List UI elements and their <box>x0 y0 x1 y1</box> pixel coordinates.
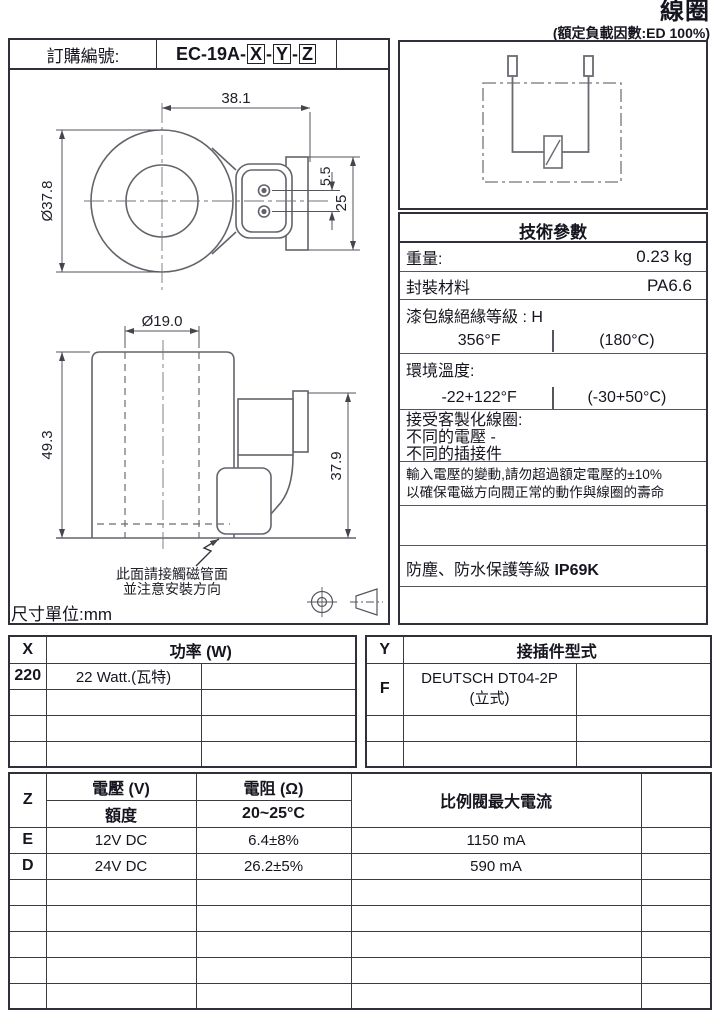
voltage-subheader: 額度 <box>46 800 196 827</box>
empty-cell <box>9 983 46 1009</box>
dim-37-8: Ø37.8 <box>39 181 56 222</box>
order-code-y: Y <box>273 44 291 65</box>
order-number-empty-cell <box>337 40 388 68</box>
empty-cell <box>403 715 576 741</box>
table-row: D 24V DC 26.2±5% 590 mA <box>9 853 711 879</box>
third-angle-projection-icon <box>350 589 383 615</box>
top-view-dimensions <box>56 108 360 272</box>
empty-cell <box>196 879 351 905</box>
empty-cell <box>351 905 641 931</box>
warning-line-1: 輸入電壓的變動,請勿超過額定電壓的±10% <box>406 466 700 484</box>
dim-37-9: 37.9 <box>328 451 345 480</box>
ambient-temp-row: 環境溫度: -22+122°F (-30+50°C) <box>400 354 706 410</box>
insulation-fahrenheit: 356°F <box>406 332 552 350</box>
warning-line-2: 以確保電磁方向閥正常的動作與線圈的壽命 <box>406 484 700 502</box>
customization-row: 接受客製化線圈: 不同的電壓 - 不同的插接件 <box>400 410 706 462</box>
empty-cell <box>9 715 46 741</box>
order-number-label: 訂購編號: <box>10 40 157 68</box>
connector-code-f: F <box>366 663 403 715</box>
tech-params-title: 技術參數 <box>400 214 706 243</box>
connector-pin-1-dot <box>262 189 266 193</box>
empty-cell <box>46 905 196 931</box>
power-table-header: 功率 (W) <box>46 636 356 663</box>
terminals <box>508 56 593 76</box>
empty-cell <box>641 905 711 931</box>
empty-cell <box>641 853 711 879</box>
title-block: 線圈 (額定負載因數:ED 100%) <box>553 0 710 40</box>
empty-cell <box>201 663 356 689</box>
material-row: 封裝材料 PA6.6 <box>400 272 706 300</box>
coil-technical-drawing: 38.1 Ø37.8 5.5 25 <box>8 68 390 625</box>
ambient-fahrenheit: -22+122°F <box>406 389 552 407</box>
side-view-dimensions <box>56 326 356 538</box>
empty-cell <box>9 741 46 767</box>
dim-25: 25 <box>333 195 350 212</box>
max-current-header: 比例閥最大電流 <box>351 773 641 827</box>
terminal-pin-2 <box>584 56 593 76</box>
resistance-value: 26.2±5% <box>196 853 351 879</box>
side-connector-flange <box>293 391 308 452</box>
customization-line-2: 不同的電壓 - <box>406 429 700 446</box>
customization-line-3: 不同的插接件 <box>406 446 700 463</box>
side-connector-upper <box>238 399 293 455</box>
side-view <box>56 352 356 538</box>
empty-cell <box>9 957 46 983</box>
customization-line-1: 接受客製化線圈: <box>406 412 700 429</box>
empty-cell <box>366 715 403 741</box>
material-label: 封裝材料 <box>406 274 470 298</box>
empty-cell <box>641 879 711 905</box>
power-table-code-header: X <box>9 636 46 663</box>
weight-value: 0.23 kg <box>636 247 700 267</box>
voltage-header: 電壓 (V) <box>46 773 196 800</box>
current-value: 1150 mA <box>351 827 641 853</box>
projection-symbols <box>307 587 383 617</box>
resistance-value: 6.4±8% <box>196 827 351 853</box>
empty-cell <box>196 905 351 931</box>
top-view-centerlines <box>84 103 330 290</box>
terminal-pin-1 <box>508 56 517 76</box>
datasheet-page: 線圈 (額定負載因數:ED 100%) 訂購編號: EC-19A-X-Y-Z <box>0 0 715 1013</box>
ambient-celsius: (-30+50°C) <box>554 389 700 407</box>
top-view-dim-labels: 38.1 Ø37.8 5.5 25 <box>39 90 350 221</box>
voltage-code-e: E <box>9 827 46 853</box>
empty-cell <box>403 741 576 767</box>
empty-cell <box>196 983 351 1009</box>
connector-option-table: Y 接插件型式 F DEUTSCH DT04-2P (立式) <box>365 635 712 768</box>
side-connector-curve <box>271 455 293 514</box>
connector-value: DEUTSCH DT04-2P (立式) <box>403 663 576 715</box>
mounting-note: 此面請接觸磁管面 並注意安裝方向 <box>116 566 228 597</box>
empty-cell <box>46 689 201 715</box>
order-number-code: EC-19A-X-Y-Z <box>157 40 337 68</box>
empty-cell <box>576 715 711 741</box>
empty-cell <box>201 715 356 741</box>
side-view-hidden-lines <box>97 352 230 538</box>
dim-19-0: Ø19.0 <box>142 313 183 330</box>
dim-38-1: 38.1 <box>221 90 250 107</box>
circuit-panel <box>398 40 708 210</box>
order-code-prefix: EC-19A- <box>176 44 246 65</box>
voltage-table-code-header: Z <box>9 773 46 827</box>
empty-cell <box>46 957 196 983</box>
side-connector-lower <box>217 468 271 534</box>
current-value: 590 mA <box>351 853 641 879</box>
insulation-row: 漆包線絕緣等級 : H 356°F (180°C) <box>400 300 706 354</box>
empty-cell <box>9 689 46 715</box>
connector-value-line-1: DEUTSCH DT04-2P <box>404 670 576 687</box>
voltage-option-table: Z 電壓 (V) 電阻 (Ω) 比例閥最大電流 額度 20~25°C E 12V… <box>8 772 712 1010</box>
empty-cell <box>46 983 196 1009</box>
empty-cell <box>576 741 711 767</box>
coil-circuit-diagram <box>400 42 706 208</box>
voltage-value: 12V DC <box>46 827 196 853</box>
empty-cell <box>9 905 46 931</box>
connector-table-code-header: Y <box>366 636 403 663</box>
connector-value-line-2: (立式) <box>404 687 576 708</box>
voltage-value: 24V DC <box>46 853 196 879</box>
empty-row <box>400 587 706 623</box>
order-number-row: 訂購編號: EC-19A-X-Y-Z <box>10 40 388 70</box>
empty-cell <box>9 931 46 957</box>
empty-cell <box>641 827 711 853</box>
note-leader-arrow <box>196 539 219 566</box>
resistance-header: 電阻 (Ω) <box>196 773 351 800</box>
page-title: 線圈 <box>553 0 710 24</box>
empty-row <box>400 506 706 546</box>
resistance-subheader: 20~25°C <box>196 800 351 827</box>
order-code-z: Z <box>299 44 316 65</box>
empty-cell <box>641 931 711 957</box>
empty-cell <box>196 931 351 957</box>
empty-cell <box>351 983 641 1009</box>
insulation-label: 漆包線絕緣等級 : H <box>406 303 700 327</box>
dim-5-5: 5.5 <box>317 166 333 186</box>
ambient-temp-label: 環境溫度: <box>406 357 700 381</box>
table-row: E 12V DC 6.4±8% 1150 mA <box>9 827 711 853</box>
insulation-celsius: (180°C) <box>554 332 700 350</box>
voltage-code-d: D <box>9 853 46 879</box>
weight-row: 重量: 0.23 kg <box>400 243 706 272</box>
empty-cell <box>576 663 711 715</box>
empty-cell <box>46 931 196 957</box>
empty-cell <box>201 689 356 715</box>
empty-cell <box>351 957 641 983</box>
empty-cell <box>641 957 711 983</box>
voltage-warning-row: 輸入電壓的變動,請勿超過額定電壓的±10% 以確保電磁方向閥正常的動作與線圈的壽… <box>400 462 706 506</box>
power-code-220: 220 <box>9 663 46 689</box>
protection-label: 防塵、防水保護等級 <box>406 562 550 579</box>
weight-label: 重量: <box>406 245 442 269</box>
empty-cell <box>351 931 641 957</box>
empty-cell <box>201 741 356 767</box>
power-value: 22 Watt.(瓦特) <box>46 663 201 689</box>
connector-table-header: 接插件型式 <box>403 636 711 663</box>
dimension-unit-label: 尺寸單位:mm <box>11 600 112 625</box>
connector-pin-2-dot <box>262 210 266 214</box>
power-option-table: X 功率 (W) 220 22 Watt.(瓦特) <box>8 635 357 768</box>
tech-params-panel: 技術參數 重量: 0.23 kg 封裝材料 PA6.6 漆包線絕緣等級 : H … <box>398 212 708 625</box>
dim-49-3: 49.3 <box>39 430 56 459</box>
empty-cell <box>641 773 711 827</box>
protection-value: IP69K <box>554 562 598 579</box>
empty-cell <box>366 741 403 767</box>
note-line-1: 此面請接觸磁管面 <box>116 566 228 582</box>
order-code-x: X <box>247 44 265 65</box>
empty-cell <box>46 879 196 905</box>
empty-cell <box>641 983 711 1009</box>
material-value: PA6.6 <box>647 276 700 296</box>
empty-cell <box>9 879 46 905</box>
empty-cell <box>46 741 201 767</box>
side-view-dim-labels: Ø19.0 49.3 37.9 <box>39 313 345 481</box>
empty-cell <box>196 957 351 983</box>
empty-cell <box>46 715 201 741</box>
note-line-2: 並注意安裝方向 <box>123 581 221 597</box>
protection-row: 防塵、防水保護等級 IP69K <box>400 546 706 587</box>
page-subtitle: (額定負載因數:ED 100%) <box>553 26 710 40</box>
datum-target-icon <box>307 587 337 617</box>
empty-cell <box>351 879 641 905</box>
